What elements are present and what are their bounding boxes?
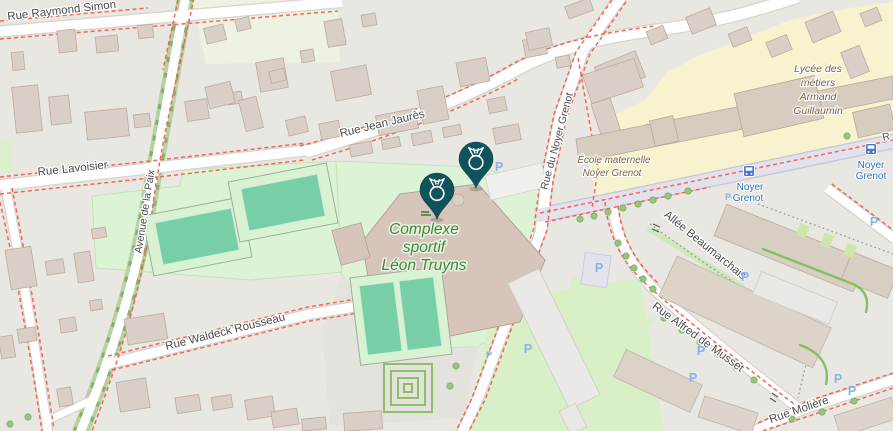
parking-icon: P [697,344,705,358]
bus-stop-label: Noyer [737,182,764,193]
bus-stop-label: Noyer [858,160,885,171]
bus-icon [744,166,755,177]
map-canvas[interactable]: Rue Raymond Simon Rue Lavoisier Rue Jean… [0,0,893,431]
parking-icon: P [848,384,856,398]
poi-label-complexe-line3: Léon Truyns [381,257,466,274]
poi-label-ecole-line2: Noyer Grenot [583,168,643,179]
bus-icon [866,144,877,155]
poi-label-lycee-line4: Guillaumin [793,105,843,117]
parking-icon: P [495,160,503,174]
poi-label-ecole-line1: École maternelle [578,155,652,166]
parking-icon: P [834,372,842,386]
parking-icon: P [870,215,878,229]
parking-icon: P [524,342,532,356]
bus-stop-label: Grenot [733,193,764,204]
poi-label-lycee-line2: métiers [801,77,836,89]
parking-icon: P [725,192,731,202]
bus-stop-label: Grenot [856,171,887,182]
poi-label-lycee-line1: Lycée des [794,63,842,75]
poi-label-complexe-line2: sportif [403,239,447,256]
poi-label-complexe-line1: Complexe [389,221,459,238]
poi-label-lycee-line3: Armand [799,91,838,103]
parking-icon: P [595,261,603,275]
parking-icon: P [741,270,749,284]
parking-icon: P [486,350,492,360]
parking-icon: P [689,371,697,385]
